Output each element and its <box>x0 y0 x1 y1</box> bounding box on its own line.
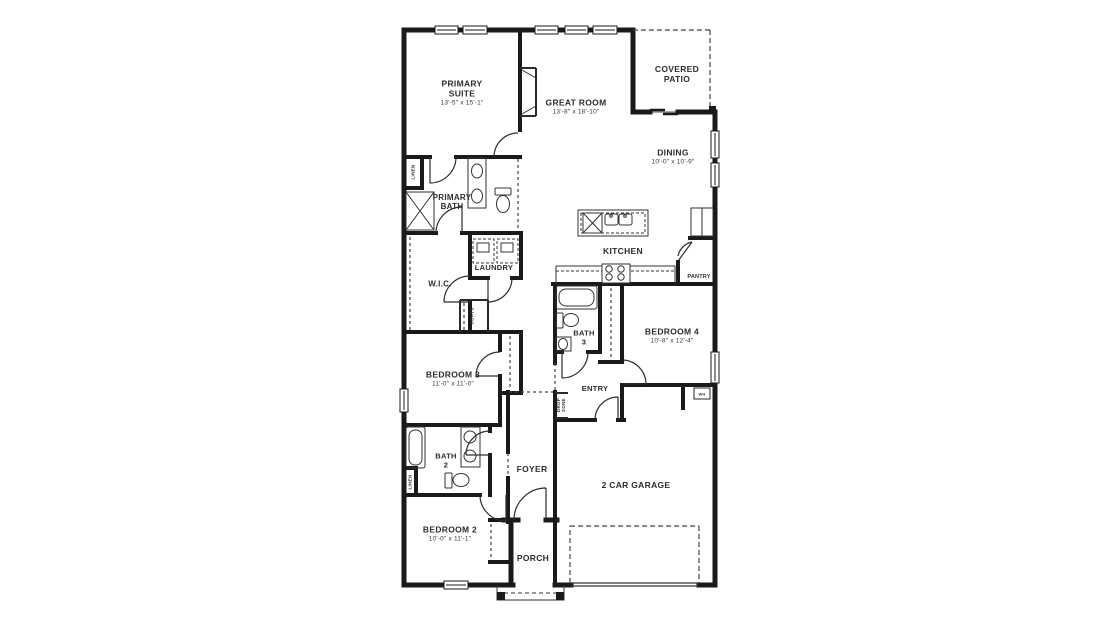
great-room-name: GREAT ROOM <box>516 98 636 108</box>
room-label-dining: DINING 10'-0" x 10'-9" <box>628 148 718 167</box>
room-label-porch: PORCH <box>508 553 558 563</box>
dining-name: DINING <box>628 148 718 158</box>
bedroom-2-dims: 10'-0" x 11'-1" <box>405 536 495 544</box>
wic-name: W.I.C. <box>415 280 465 289</box>
room-label-kitchen: KITCHEN <box>583 246 663 256</box>
bath2-tub <box>406 427 425 468</box>
closet-label-linen-primary: LINEN <box>411 165 416 180</box>
closet-label-drop-zone: DROP ZONE <box>556 393 566 417</box>
room-label-pantry: PANTRY <box>679 274 719 280</box>
room-label-bedroom-2: BEDROOM 2 10'-0" x 11'-1" <box>405 525 495 544</box>
laundry-name: LAUNDRY <box>464 264 524 273</box>
bath3-tub <box>556 286 597 309</box>
room-label-primary-suite: PRIMARY SUITE 13'-5" x 15'-1" <box>427 79 497 108</box>
bath3-sink <box>556 337 571 351</box>
primary-suite-dims: 13'-5" x 15'-1" <box>427 100 497 108</box>
bath3-toilet <box>556 313 579 328</box>
cooktop-range <box>602 264 630 283</box>
room-label-primary-bath: PRIMARY BATH <box>427 193 477 211</box>
water-heater-label: WH <box>698 392 705 397</box>
kitchen-name: KITCHEN <box>583 246 663 256</box>
great-room-dims: 13'-8" x 18'-10" <box>516 109 636 117</box>
room-label-entry: ENTRY <box>570 385 620 394</box>
refrigerator <box>691 208 713 236</box>
closet-label-linen-bath2: LINEN <box>408 475 413 490</box>
primary-toilet <box>495 188 511 213</box>
porch-name: PORCH <box>508 553 558 563</box>
room-label-garage: 2 CAR GARAGE <box>581 480 691 490</box>
room-label-bedroom-4: BEDROOM 4 10'-8" x 12'-4" <box>627 327 717 346</box>
covered-patio-name: COVERED PATIO <box>647 64 707 84</box>
room-label-covered-patio: COVERED PATIO <box>647 64 707 84</box>
room-label-bedroom-3: BEDROOM 3 11'-0" x 11'-0" <box>408 370 498 389</box>
bedroom-2-name: BEDROOM 2 <box>405 525 495 535</box>
bath-3-name: BATH 3 <box>571 330 597 347</box>
room-label-laundry: LAUNDRY <box>464 264 524 273</box>
dining-dims: 10'-0" x 10'-9" <box>628 159 718 167</box>
entry-name: ENTRY <box>570 385 620 394</box>
patio-slider-door <box>650 110 678 114</box>
closet-label-coats: COATS <box>470 308 475 325</box>
bath2-vanity-sinks <box>461 427 480 467</box>
pantry-name: PANTRY <box>679 274 719 280</box>
bath2-toilet <box>445 473 469 488</box>
room-label-foyer: FOYER <box>507 464 557 474</box>
primary-suite-name: PRIMARY SUITE <box>427 79 497 99</box>
bedroom-4-name: BEDROOM 4 <box>627 327 717 337</box>
washer-dryer <box>473 239 518 263</box>
foyer-name: FOYER <box>507 464 557 474</box>
bedroom-4-dims: 10'-8" x 12'-4" <box>627 338 717 346</box>
room-label-bath-3: BATH 3 <box>571 330 597 347</box>
primary-bath-name: PRIMARY BATH <box>427 193 477 211</box>
bedroom-3-dims: 11'-0" x 11'-0" <box>408 381 498 389</box>
floor-plan-drawing <box>0 0 1114 641</box>
floor-plan-page: PRIMARY SUITE 13'-5" x 15'-1" GREAT ROOM… <box>0 0 1114 641</box>
kitchen-island <box>578 210 648 236</box>
bath-2-name: BATH 2 <box>433 453 459 470</box>
room-label-bath-2: BATH 2 <box>433 453 459 470</box>
bedroom-3-name: BEDROOM 3 <box>408 370 498 380</box>
room-label-wic: W.I.C. <box>415 280 465 289</box>
garage-name: 2 CAR GARAGE <box>581 480 691 490</box>
room-label-great-room: GREAT ROOM 13'-8" x 18'-10" <box>516 98 636 117</box>
